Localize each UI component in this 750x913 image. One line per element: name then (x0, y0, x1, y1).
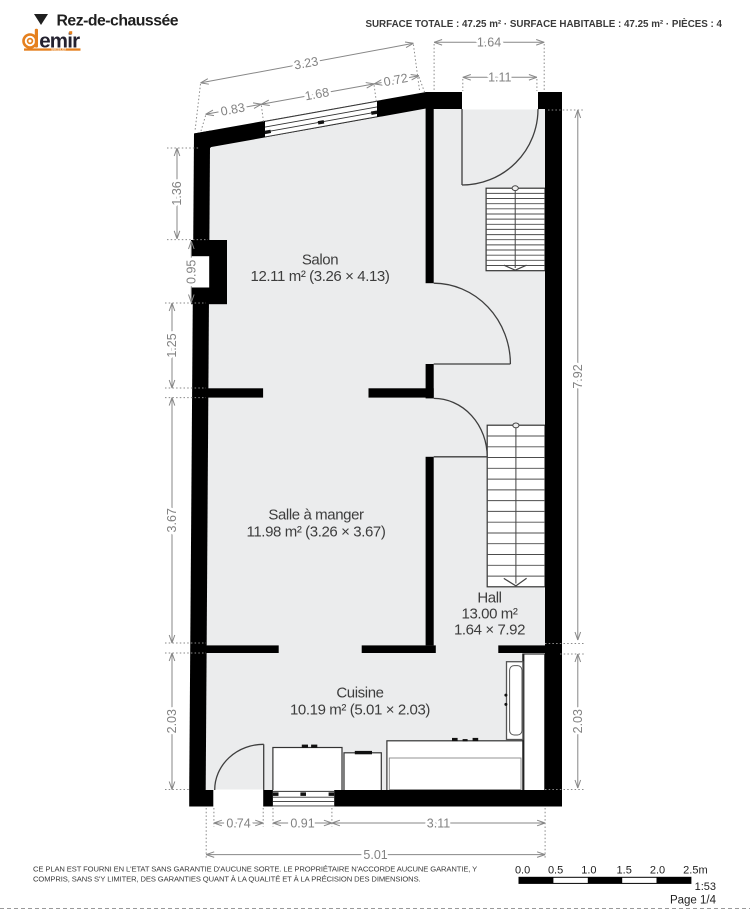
svg-text:0.74: 0.74 (226, 816, 250, 830)
svg-text:0.0: 0.0 (515, 865, 530, 877)
svg-text:Hall: Hall (477, 590, 501, 607)
svg-text:0.91: 0.91 (290, 816, 314, 830)
svg-text:1.25: 1.25 (165, 333, 179, 357)
svg-text:0.95: 0.95 (185, 260, 199, 284)
svg-text:1:53: 1:53 (695, 881, 716, 893)
svg-text:10.19 m² (5.01 × 2.03): 10.19 m² (5.01 × 2.03) (290, 702, 430, 719)
svg-text:IMMOBILIER: IMMOBILIER (51, 48, 66, 52)
svg-text:2.03: 2.03 (165, 709, 179, 733)
svg-text:1.64 × 7.92: 1.64 × 7.92 (454, 622, 525, 639)
svg-text:1.36: 1.36 (170, 181, 184, 205)
svg-text:Rez-de-chaussée: Rez-de-chaussée (57, 13, 179, 30)
svg-text:2.03: 2.03 (571, 709, 585, 733)
svg-text:3.23: 3.23 (293, 54, 320, 72)
svg-text:1.68: 1.68 (304, 85, 331, 103)
svg-text:0.83: 0.83 (220, 100, 247, 118)
svg-text:3.67: 3.67 (165, 508, 179, 532)
svg-text:0.5: 0.5 (548, 865, 563, 877)
svg-text:SURFACE TOTALE : 47.25 m² · SU: SURFACE TOTALE : 47.25 m² · SURFACE HABI… (365, 18, 722, 30)
svg-text:1.5: 1.5 (617, 865, 632, 877)
svg-text:5.01: 5.01 (363, 848, 387, 862)
svg-text:Salon: Salon (302, 252, 338, 269)
svg-text:0.72: 0.72 (383, 71, 410, 89)
svg-text:1.0: 1.0 (581, 865, 596, 877)
svg-text:Page 1/4: Page 1/4 (670, 895, 717, 907)
svg-text:2.5m: 2.5m (683, 865, 707, 877)
svg-text:Cuisine: Cuisine (336, 685, 383, 702)
svg-text:13.00 m²: 13.00 m² (462, 606, 518, 623)
svg-text:1.64: 1.64 (477, 36, 501, 50)
svg-text:CE PLAN EST FOURNI EN L'ETAT S: CE PLAN EST FOURNI EN L'ETAT SANS GARANT… (33, 865, 477, 874)
svg-text:Salle à manger: Salle à manger (268, 507, 364, 524)
svg-text:11.98 m² (3.26 × 3.67): 11.98 m² (3.26 × 3.67) (247, 524, 386, 541)
svg-text:2.0: 2.0 (650, 865, 665, 877)
svg-text:3.11: 3.11 (427, 816, 450, 830)
svg-text:1.11: 1.11 (488, 71, 511, 85)
svg-text:COMPRIS, SANS S'Y LIMITER, DES: COMPRIS, SANS S'Y LIMITER, DES GARANTIES… (33, 875, 421, 884)
svg-text:12.11 m² (3.26 × 4.13): 12.11 m² (3.26 × 4.13) (251, 268, 390, 285)
svg-text:7.92: 7.92 (571, 364, 585, 388)
